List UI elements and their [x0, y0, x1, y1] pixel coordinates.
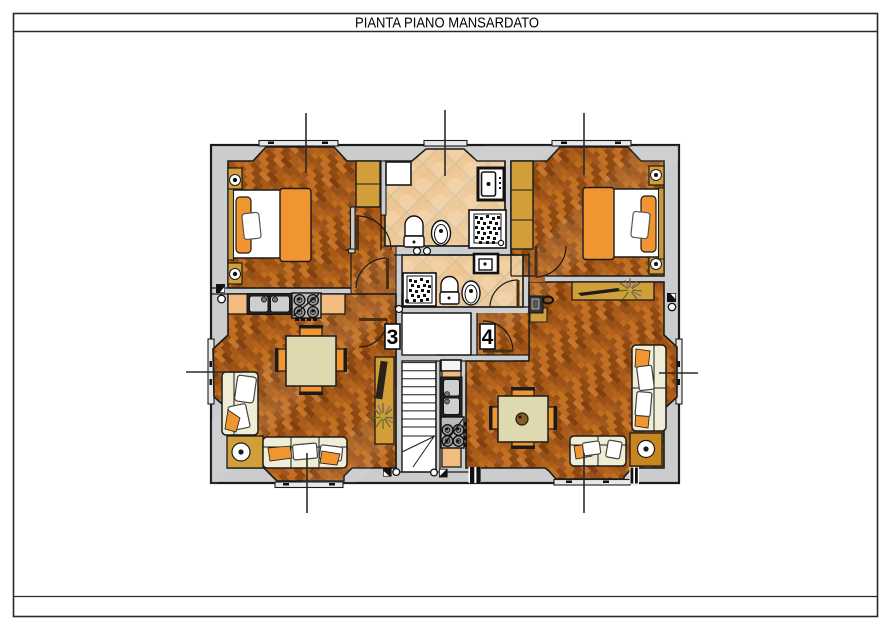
svg-text:4: 4 — [482, 326, 494, 349]
svg-text:3: 3 — [387, 326, 399, 349]
svg-text:PIANTA PIANO MANSARDATO: PIANTA PIANO MANSARDATO — [355, 15, 539, 32]
